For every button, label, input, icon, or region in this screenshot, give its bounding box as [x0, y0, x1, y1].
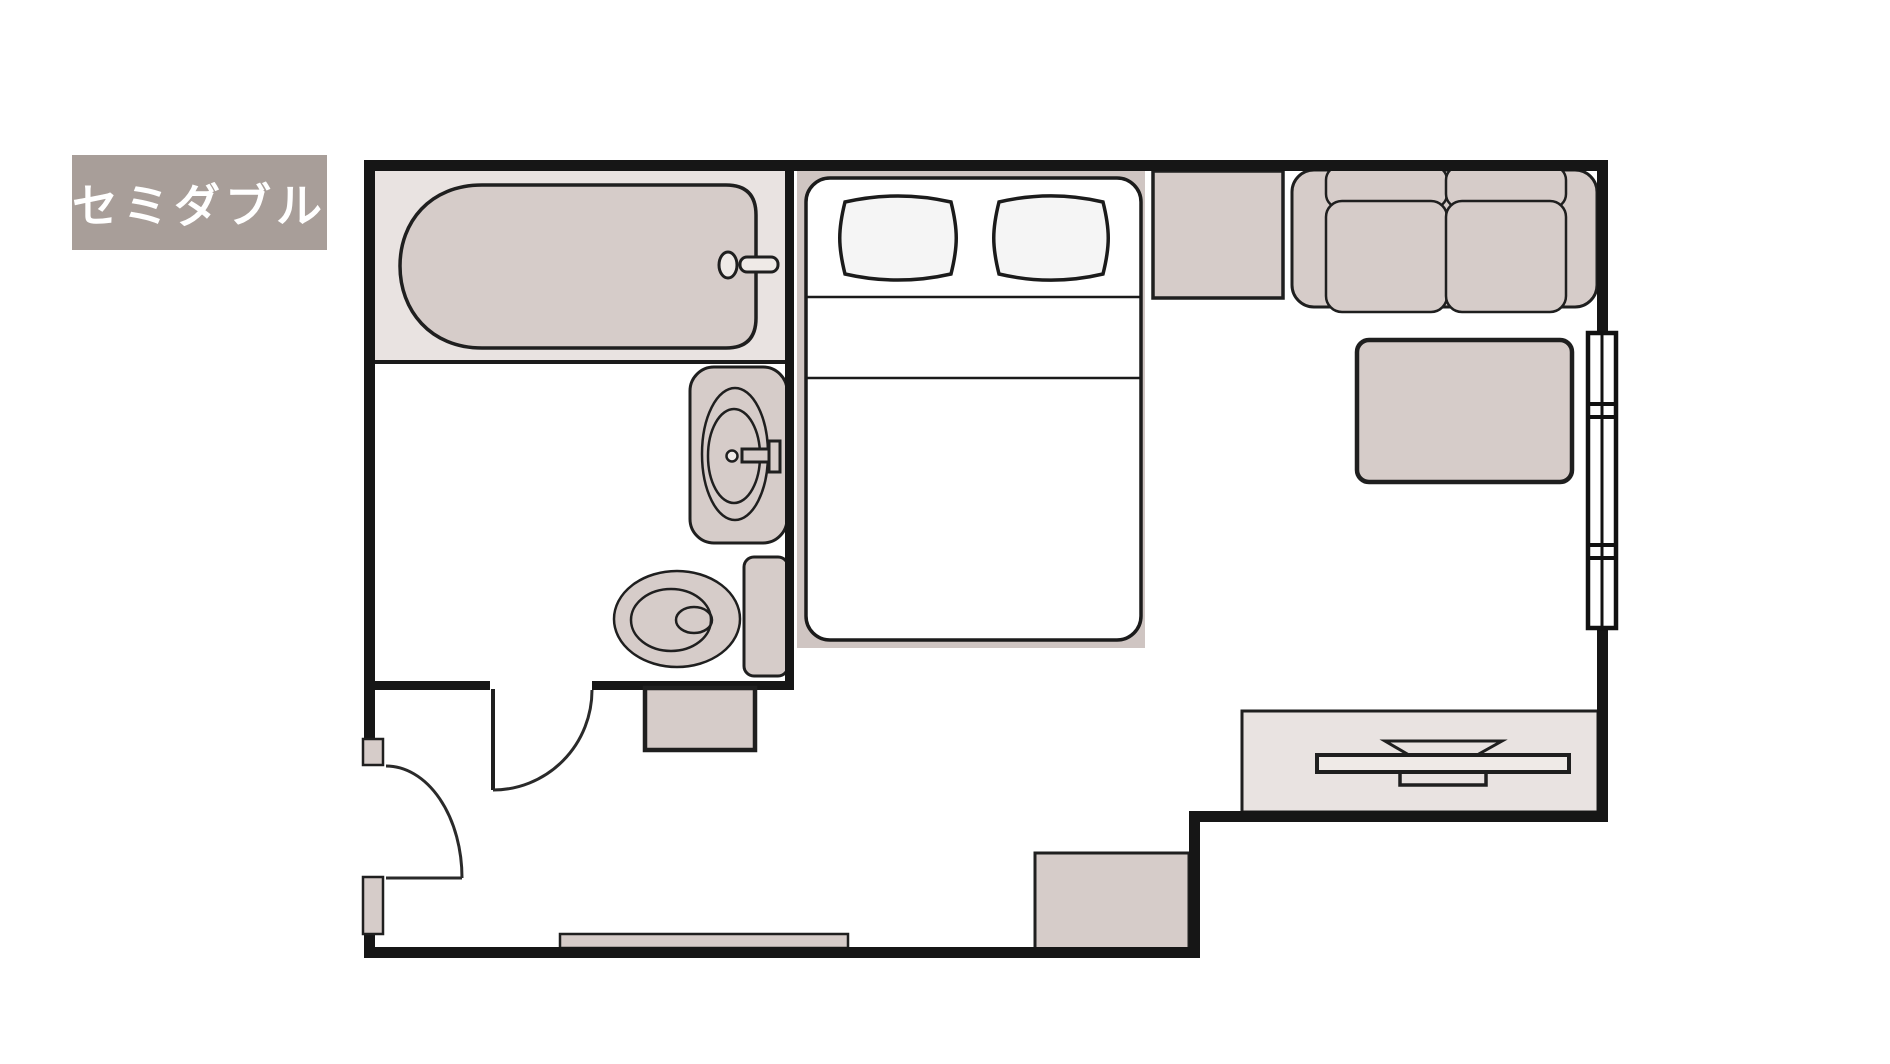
bench: [1035, 853, 1189, 949]
bathroom-door: [493, 689, 592, 790]
low-table: [1357, 340, 1572, 482]
bathtub: [400, 185, 756, 348]
outer-wall-left-upper: [364, 160, 375, 741]
bathtub-zone-divider: [375, 360, 785, 364]
entrance-door-jamb-bottom: [363, 877, 383, 934]
counter: [1153, 171, 1283, 298]
entrance-door-swing-arc: [386, 766, 462, 878]
bathtub-faucet-knob: [719, 252, 737, 278]
room-type-label: セミダブル: [72, 155, 327, 250]
step-wall-horizontal: [1189, 811, 1608, 822]
entrance-door: [363, 739, 462, 934]
window: [1588, 333, 1616, 628]
floor-mat: [560, 934, 848, 948]
outer-wall-top: [364, 160, 1608, 171]
step-wall-vertical: [1189, 811, 1200, 958]
toilet-tank: [744, 557, 788, 676]
sofa-seat-cushion-left: [1326, 201, 1447, 312]
pillow-right: [994, 196, 1109, 280]
storage-cabinet: [645, 688, 755, 750]
bathtub-faucet: [740, 257, 778, 272]
pillow-left: [840, 196, 957, 280]
bathroom-wall-right: [785, 165, 794, 690]
outer-wall-bottom: [364, 947, 1200, 958]
entrance-door-jamb-top: [363, 739, 383, 765]
washbasin-drain: [727, 451, 738, 462]
bathroom-door-swing-arc: [493, 690, 592, 790]
tv-board: [1317, 755, 1569, 772]
floor-plan-canvas: セミダブル: [0, 0, 1890, 1064]
bathroom-wall-bottom-left: [364, 681, 490, 690]
sofa-seat-cushion-right: [1446, 201, 1566, 312]
washbasin-faucet-handle: [769, 441, 780, 472]
